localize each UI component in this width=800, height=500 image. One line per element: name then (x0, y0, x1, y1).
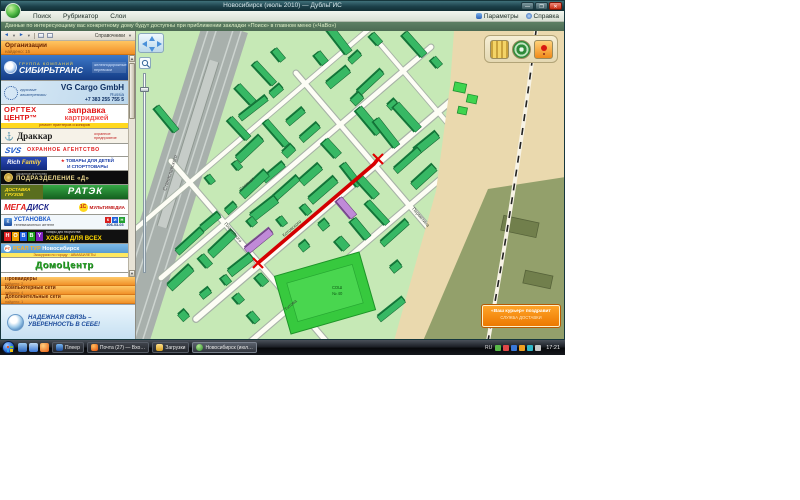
print-icon[interactable] (38, 33, 44, 38)
vgcargo-logo-icon (4, 86, 18, 100)
internet-explorer-icon[interactable] (29, 343, 38, 352)
map-ad-button[interactable]: «Ваш курьер» поздравит СЛУЖБА ДОСТАВКИ (482, 305, 560, 327)
maximize-button[interactable]: ❐ (535, 2, 548, 10)
menu-bar: Поиск Рубрикатор Слои Параметры Справка (1, 11, 564, 22)
references-caret-icon: ▼ (128, 33, 132, 38)
hint-bar: Данные по интересующему вас конкретному … (1, 22, 564, 31)
taskbar-button-player[interactable]: Плеер (52, 342, 84, 353)
screen: Новосибирск (июль 2010) — ДубльГИС — ❐ ✕… (0, 0, 800, 500)
pan-up-icon (149, 36, 155, 41)
taskbar-clock[interactable]: 17:21 (546, 345, 560, 351)
firefox-icon (91, 344, 98, 351)
banner-antenna[interactable]: К УСТАНОВКА телевизионных антенн К И Н (1, 215, 128, 230)
taskbar: Плеер Почта (27) — Вхо… Загрузки Новосиб… (0, 340, 565, 355)
settings-icon (476, 13, 482, 19)
menu-rubricator[interactable]: Рубрикатор (57, 11, 104, 22)
banner-ratek[interactable]: ДОСТАВКА ГРУЗОВ РАТЭК (1, 185, 128, 200)
app-logo-orb-icon[interactable] (5, 3, 21, 19)
banner-drakkar[interactable]: ⚓ Драккар охранное предприятие (1, 129, 128, 144)
zoom-tool-button[interactable] (139, 57, 151, 69)
pan-compass[interactable] (138, 33, 164, 53)
map-drawing: Котовского Степная Титова Пермитина Плах… (136, 31, 564, 339)
stadium-label: № 40 (332, 291, 343, 296)
map-toolbar (484, 35, 558, 63)
tray-antivirus-icon[interactable] (495, 345, 501, 351)
references-button[interactable]: Справочники (95, 33, 125, 39)
menu-settings[interactable]: Параметры (476, 13, 519, 20)
banner-reliable-connection[interactable]: НАДЕЖНАЯ СВЯЗЬ – УВЕРЕННОСТЬ В СЕБЕ! (1, 304, 135, 339)
taskbar-button-mail[interactable]: Почта (27) — Вхо… (87, 342, 149, 353)
back-icon[interactable]: ◄ (4, 31, 9, 40)
magnifier-icon (141, 59, 151, 69)
banner-orgtech[interactable]: ОРГТЕХ ЦЕНТР™ заправка картриджей ремонт… (1, 105, 128, 129)
taskbar-button-downloads[interactable]: Загрузки (152, 342, 189, 353)
banner-sibtrans[interactable]: ГРУППА КОМПАНИЙ СИБИРЬТРАНС железнодорож… (1, 55, 128, 81)
start-button[interactable] (2, 341, 15, 354)
realtour-logo-icon: РТ (4, 245, 11, 252)
antenna-logo-icon: К (4, 218, 12, 226)
compass-rose-icon[interactable] (512, 40, 531, 59)
banner-megadisk[interactable]: МЕГАДИСК 1С МУЛЬТИМЕДИА (1, 200, 128, 215)
results-title: Организации (5, 42, 131, 49)
scroll-down-icon[interactable]: ▼ (129, 270, 135, 277)
ship-icon: ⚓ (4, 132, 14, 141)
ad-banner-list: ГРУППА КОМПАНИЙ СИБИРЬТРАНС железнодорож… (1, 55, 128, 277)
zoom-slider[interactable] (141, 73, 148, 273)
tray-volume-icon[interactable] (527, 345, 533, 351)
star-icon: ★ (61, 158, 65, 163)
tray-network-icon[interactable] (511, 345, 517, 351)
map-canvas[interactable]: Котовского Степная Титова Пермитина Плах… (136, 31, 564, 339)
banner-richfamily[interactable]: Rich Family ★ ТОВАРЫ ДЛЯ ДЕТЕЙ И СПОРТТО… (1, 157, 128, 171)
firefox-quicklaunch-icon[interactable] (40, 343, 49, 352)
dublgis-icon (196, 344, 203, 351)
pan-down-icon (149, 47, 155, 52)
richfamily-logo: Rich Family (1, 157, 47, 170)
system-tray: RU 17:21 (485, 345, 563, 351)
banner-vgcargo[interactable]: грузовые авиаперевозки VG Cargo GmbH Rus… (1, 81, 128, 105)
measure-ruler-icon[interactable] (490, 40, 509, 59)
sidebar-toolbar: ◄ ▼ ► ▼ Справочники ▼ (1, 31, 135, 41)
results-count: найдено: 15 (5, 49, 131, 54)
help-icon (526, 13, 532, 19)
windows-logo-icon (7, 346, 13, 352)
results-header[interactable]: Организации найдено: 15 (1, 41, 135, 55)
downloads-folder-icon (156, 344, 163, 351)
close-button[interactable]: ✕ (549, 2, 562, 10)
tray-messenger-icon[interactable] (519, 345, 525, 351)
sidebar: ◄ ▼ ► ▼ Справочники ▼ Организации найден… (1, 31, 136, 339)
forward-icon[interactable]: ► (19, 31, 24, 40)
show-desktop-icon[interactable] (18, 343, 27, 352)
taskbar-button-dublgis[interactable]: Новосибирск (июл… (192, 342, 257, 353)
title-bar[interactable]: Новосибирск (июль 2010) — ДубльГИС — ❐ ✕ (1, 1, 564, 11)
section-additional-networks[interactable]: Дополнительные сети найдено: 1 (1, 295, 135, 304)
banner-podrazdelenie-d[interactable]: охранное агентство ПОДРАЗДЕЛЕНИЕ «Д» (1, 171, 128, 185)
banner-realtour[interactable]: РТ РЕАЛ ТУР Новосибирск Экскурсии по гор… (1, 244, 128, 258)
scroll-thumb[interactable] (129, 63, 135, 119)
banner-domocentr[interactable]: ДомоЦентр (1, 258, 128, 273)
forward-caret-icon[interactable]: ▼ (27, 33, 31, 38)
1c-logo-icon: 1С (79, 203, 88, 212)
banner-hobby[interactable]: H O B B Y товары для творчества ХОББИ ДЛ… (1, 230, 128, 244)
menu-help[interactable]: Справка (526, 13, 560, 20)
banner-svs[interactable]: SVS ОХРАННОЕ АГЕНТСТВО (1, 144, 128, 157)
tray-update-icon[interactable] (503, 345, 509, 351)
back-caret-icon[interactable]: ▼ (12, 33, 16, 38)
zoom-slider-handle[interactable] (140, 87, 149, 92)
minimize-button[interactable]: — (521, 2, 534, 10)
sibtrans-logo-icon (4, 61, 17, 74)
window-title: Новосибирск (июль 2010) — ДубльГИС (1, 1, 564, 11)
pan-right-icon (157, 41, 162, 47)
media-player-icon (56, 344, 63, 351)
scroll-up-icon[interactable]: ▲ (129, 55, 135, 62)
language-indicator[interactable]: RU (485, 345, 492, 351)
emblem-icon (4, 173, 13, 182)
stadium-label: СОШ (332, 285, 342, 290)
sidebar-scrollbar[interactable]: ▲ ▼ (128, 55, 135, 277)
telecom-logo-icon (7, 314, 24, 331)
menu-layers[interactable]: Слои (104, 11, 132, 22)
save-icon[interactable] (47, 33, 53, 38)
dublgis-window: Новосибирск (июль 2010) — ДубльГИС — ❐ ✕… (0, 0, 565, 340)
pan-left-icon (142, 41, 147, 47)
toolbar-separator (34, 33, 35, 39)
tray-usb-icon[interactable] (535, 345, 541, 351)
map-legend-icon[interactable] (534, 40, 553, 59)
menu-search[interactable]: Поиск (27, 11, 57, 22)
